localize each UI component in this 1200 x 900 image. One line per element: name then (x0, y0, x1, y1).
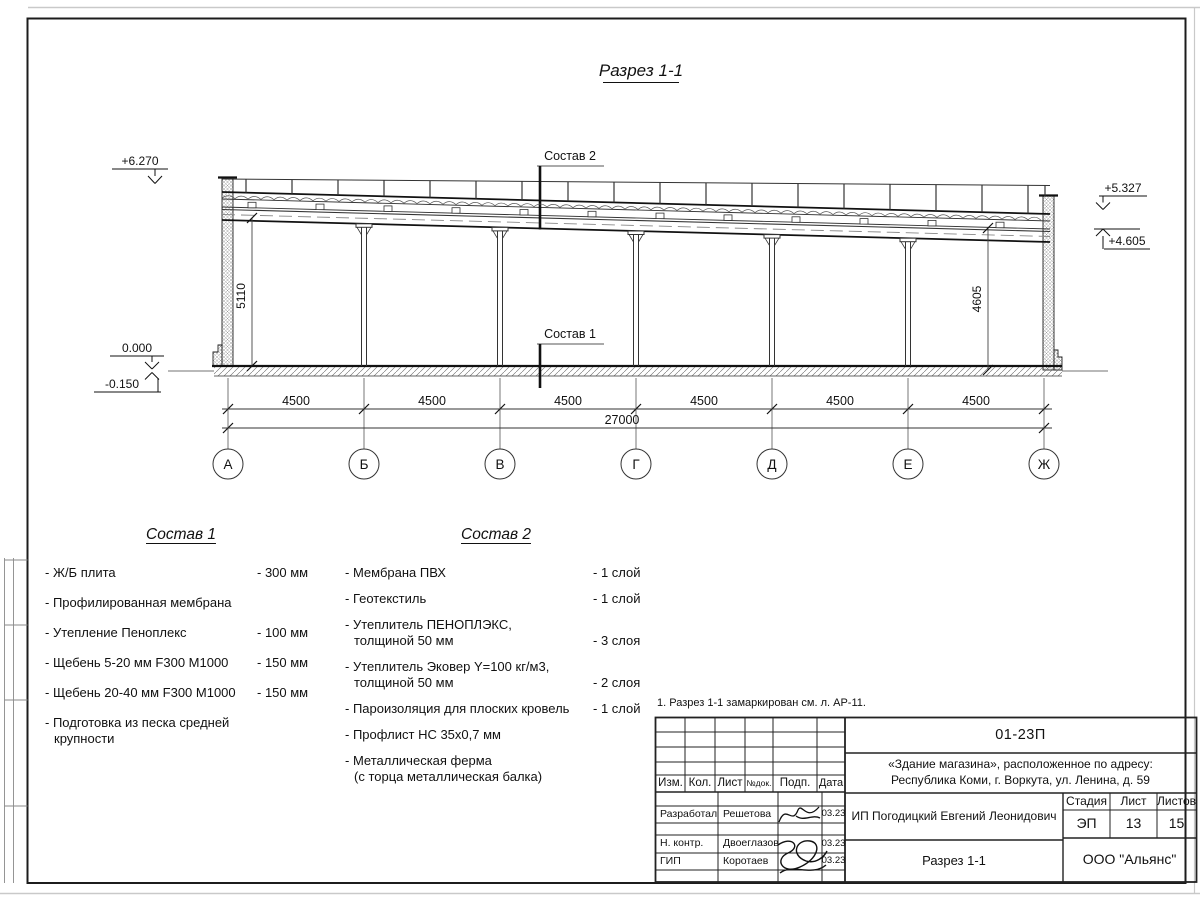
tb-name-ncontrol: Двоеглазов (720, 835, 780, 853)
callout-sostav2: Состав 2 (544, 149, 596, 163)
tb-col-kol: Кол. (685, 775, 715, 792)
tb-doc-number: 01-23П (845, 718, 1196, 753)
bay-dim-label: 4500 (282, 394, 310, 408)
axis-bubbles: АБВГДЕЖ (213, 449, 1059, 479)
vert-dim-left: 5110 (234, 283, 248, 309)
bay-dim-label: 4500 (418, 394, 446, 408)
tb-date-developer: 03.23 (822, 806, 845, 823)
axis-label: Д (767, 457, 776, 472)
tb-col-ndok: №док. (745, 775, 773, 792)
sheet-note: 1. Разрез 1-1 замаркирован см. л. АР-11. (657, 697, 937, 709)
dimension-chain: 45004500450045004500450027000 (222, 378, 1052, 449)
layer-item: - Профлист НС 35х0,7 мм (345, 727, 647, 743)
elevation-zero: 0.000 (122, 341, 152, 355)
tb-role-gip: ГИП (657, 853, 720, 870)
layer-item: - Металлическая ферма(с торца металличес… (345, 753, 647, 785)
layer-item: - Геотекстиль - 1 слой (345, 591, 647, 607)
axis-label: Б (360, 457, 369, 472)
tb-col-list: Лист (715, 775, 745, 792)
vert-dim-right: 4605 (970, 285, 984, 312)
sostav1-list: - Ж/Б плита - 300 мм - Профилированная м… (45, 565, 317, 747)
floor-slab (214, 366, 1062, 376)
tb-project-name: «Здание магазина», расположенное по адре… (845, 753, 1196, 793)
layer-item: - Щебень 20-40 мм F300 М1000 - 150 мм (45, 685, 317, 701)
truss-top-chord (222, 210, 1050, 232)
layer-item: - Утеплитель ПЕНОПЛЭКС,толщиной 50 мм - … (345, 617, 647, 649)
total-dim-label: 27000 (605, 413, 640, 427)
elevation-minus0150: -0.150 (105, 377, 139, 391)
right-wall (1043, 196, 1054, 370)
bay-dim-label: 4500 (962, 394, 990, 408)
columns (356, 224, 916, 366)
tb-stage-label: Стадия (1063, 793, 1110, 810)
axis-label: Ж (1038, 457, 1051, 472)
bay-dim-label: 4500 (690, 394, 718, 408)
sostav1-block: Состав 1 - Ж/Б плита - 300 мм - Профилир… (45, 527, 317, 761)
tb-sheets-value: 15 (1157, 810, 1196, 838)
axis-label: Г (632, 457, 640, 472)
bay-dim-label: 4500 (554, 394, 582, 408)
sostav2-block: Состав 2 - Мембрана ПВХ - 1 слой - Геоте… (345, 527, 647, 795)
layer-item: - Подготовка из песка среднейкрупности (45, 715, 317, 747)
tb-project-line2: Республика Коми, г. Воркута, ул. Ленина,… (888, 773, 1153, 789)
tb-company: ООО "Альянс" (1063, 838, 1196, 882)
signature-gip (772, 833, 830, 879)
elevation-plus4605: +4.605 (1108, 234, 1145, 248)
tb-name-gip: Коротаев (720, 853, 780, 870)
layer-item: - Мембрана ПВХ - 1 слой (345, 565, 647, 581)
layer-item: - Пароизоляция для плоских кровель - 1 с… (345, 701, 647, 717)
sostav2-list: - Мембрана ПВХ - 1 слой - Геотекстиль - … (345, 565, 647, 785)
left-wall (222, 178, 233, 366)
tb-stage-value: ЭП (1063, 810, 1110, 838)
tb-sheet-title: Разрез 1-1 (845, 840, 1063, 882)
drawing-title: Разрез 1-1 (599, 61, 683, 80)
axis-label: Е (903, 457, 912, 472)
parapet-top-line (222, 179, 1050, 186)
roof-insulation-scallops (222, 196, 1041, 220)
tb-role-ncontrol: Н. контр. (657, 835, 720, 853)
tb-col-izm: Изм. (656, 775, 685, 792)
layer-item: - Утеплитель Эковер Y=100 кг/м3,толщиной… (345, 659, 647, 691)
tb-col-data: Дата (817, 775, 845, 792)
left-margin-boxes (5, 558, 28, 883)
layer-item: - Профилированная мембрана (45, 595, 317, 611)
left-footing (213, 345, 222, 366)
tb-name-developer: Решетова (720, 806, 780, 823)
layer-item: - Ж/Б плита - 300 мм (45, 565, 317, 581)
callout-sostav1: Состав 1 (544, 327, 596, 341)
tb-client: ИП Погодицкий Евгений Леонидович (845, 793, 1063, 840)
tb-project-line1: «Здание магазина», расположенное по адре… (888, 757, 1153, 773)
axis-label: А (223, 457, 232, 472)
tb-col-podp: Подп. (773, 775, 817, 792)
elevation-plus5327: +5.327 (1104, 181, 1141, 195)
callouts: Состав 2 Состав 1 (537, 149, 604, 388)
layer-item: - Утепление Пеноплекс - 100 мм (45, 625, 317, 641)
sostav2-title: Состав 2 (345, 527, 647, 543)
drawing-sheet: Разрез 1-1 +6.270 0.000 -0.150 +5. (0, 0, 1200, 900)
bay-dim-label: 4500 (826, 394, 854, 408)
sostav1-title: Состав 1 (45, 527, 317, 543)
axis-label: В (495, 457, 504, 472)
layer-item: - Щебень 5-20 мм F300 М1000 - 150 мм (45, 655, 317, 671)
tb-sheet-label: Лист (1110, 793, 1157, 810)
tb-sheets-label: Листов (1157, 793, 1196, 810)
elevation-plus6270: +6.270 (121, 154, 158, 168)
tb-sheet-value: 13 (1110, 810, 1157, 838)
tb-role-developer: Разработал (657, 806, 720, 823)
signature-developer (776, 800, 822, 826)
